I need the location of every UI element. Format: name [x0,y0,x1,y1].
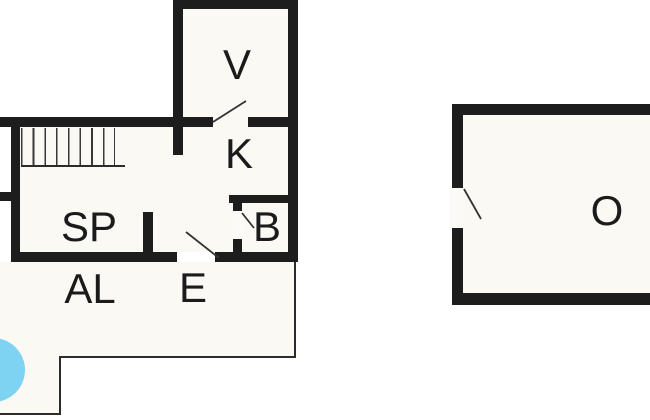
wall-v-left [173,0,183,127]
door-gap-outbuilding [450,188,465,228]
terrace-outline-bottom-right [59,356,296,358]
floorplan-canvas: V K SP B AL E O [0,0,650,420]
room-label-k: K [225,133,253,175]
room-label-sp: SP [61,206,117,248]
staircase-bottom-line [21,165,125,167]
wall-main-left [11,117,20,262]
terrace-outline-bottom-left [0,413,61,415]
room-label-o: O [591,190,624,232]
wall-k-stub [173,127,183,155]
wall-outbuilding-bottom [452,293,650,305]
wall-sp-stub [143,212,153,262]
door-gap-b [231,211,244,239]
staircase [21,128,115,165]
wall-v-top [173,0,298,9]
wall-bottom-right [215,252,298,262]
room-label-v: V [223,44,251,86]
wall-outbuilding-top [452,104,650,115]
wall-left-edge-stub [0,192,11,201]
terrace-floor-upper [0,262,294,357]
wall-main-right [288,0,298,262]
room-label-al: AL [64,268,115,310]
room-label-e: E [179,267,207,309]
room-label-b: B [253,206,281,248]
terrace-outline-right [294,262,296,358]
terrace-outline-left-vertical [59,356,61,415]
